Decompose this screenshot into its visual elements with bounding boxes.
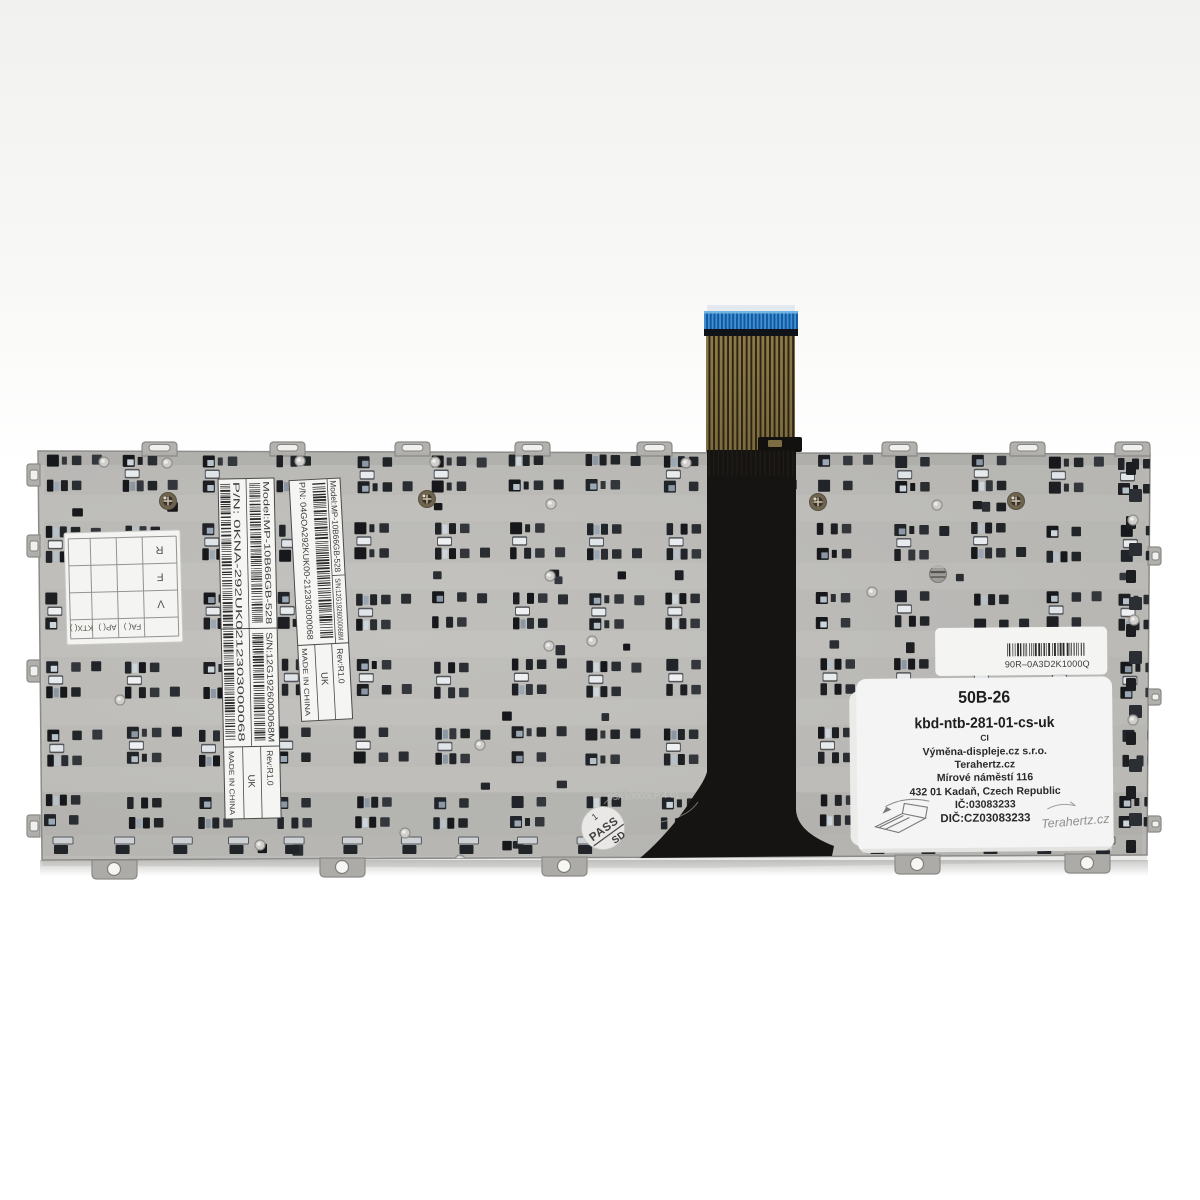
- svg-text:Rev:R1.0: Rev:R1.0: [335, 648, 347, 684]
- svg-text:90R–0A3D2K1000Q: 90R–0A3D2K1000Q: [1005, 659, 1090, 670]
- svg-text:UK: UK: [318, 672, 330, 686]
- svg-text:MADE IN CHINA: MADE IN CHINA: [227, 751, 237, 815]
- svg-text:CI: CI: [980, 733, 989, 743]
- svg-text:IČ:03083233: IČ:03083233: [955, 797, 1016, 811]
- svg-text:KTX( ): KTX( ): [69, 623, 93, 633]
- svg-text:Mírové náměstí 116: Mírové náměstí 116: [937, 771, 1034, 784]
- svg-text:UK: UK: [245, 774, 256, 788]
- svg-text:V: V: [156, 597, 164, 609]
- svg-text:432 01 Kadaň, Czech Republic: 432 01 Kadaň, Czech Republic: [910, 785, 1061, 799]
- svg-text:Výměna-displeje.cz s.r.o.: Výměna-displeje.cz s.r.o.: [923, 745, 1048, 758]
- svg-text:Rev:R1.0: Rev:R1.0: [265, 750, 276, 786]
- svg-text:Terahertz.cz: Terahertz.cz: [955, 758, 1016, 771]
- svg-text:AP( ): AP( ): [98, 623, 117, 632]
- svg-text:R: R: [155, 543, 163, 555]
- svg-text:DIČ:CZ03083233: DIČ:CZ03083233: [940, 811, 1030, 825]
- svg-text:FA( ): FA( ): [123, 622, 141, 631]
- svg-text:kbd-ntb-281-01-cs-uk: kbd-ntb-281-01-cs-uk: [914, 714, 1055, 732]
- svg-text:50B-26: 50B-26: [958, 687, 1010, 707]
- svg-text:F: F: [156, 570, 163, 582]
